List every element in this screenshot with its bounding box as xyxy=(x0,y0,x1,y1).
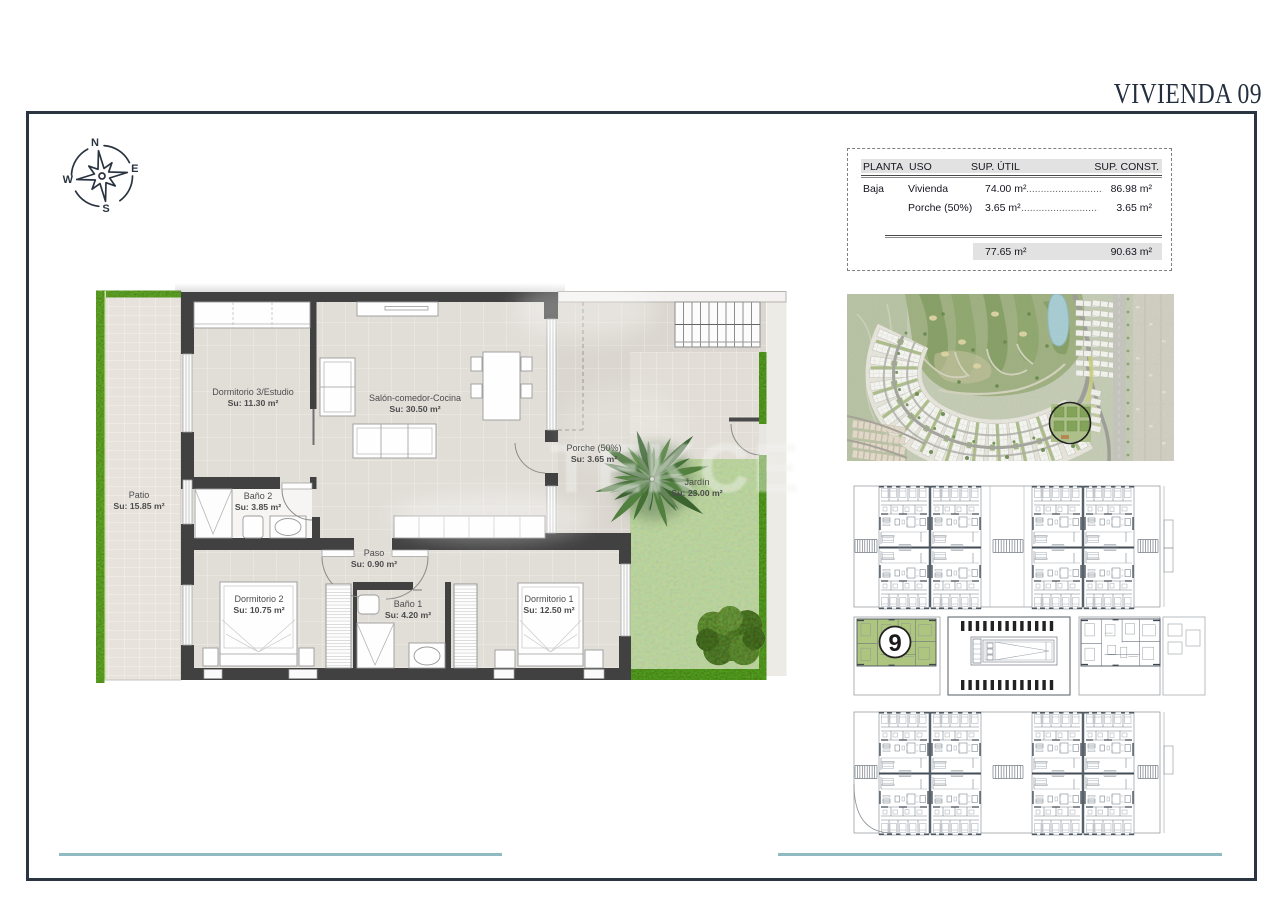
svg-text:W: W xyxy=(63,174,74,186)
svg-text:Su: 30.50 m²: Su: 30.50 m² xyxy=(389,404,440,414)
svg-text:S: S xyxy=(102,203,109,215)
svg-text:Su: 12.50 m²: Su: 12.50 m² xyxy=(523,605,574,615)
svg-text:9: 9 xyxy=(888,630,901,657)
svg-text:Porche (50%): Porche (50%) xyxy=(566,443,621,453)
svg-text:Salón-comedor-Cocina: Salón-comedor-Cocina xyxy=(369,393,461,403)
svg-text:Dormitorio 2: Dormitorio 2 xyxy=(234,594,283,604)
svg-text:Su: 0.90 m²: Su: 0.90 m² xyxy=(351,559,397,569)
svg-text:Patio: Patio xyxy=(129,490,150,500)
svg-text:Su: 15.85 m²: Su: 15.85 m² xyxy=(113,501,164,511)
svg-text:Su: 10.75 m²: Su: 10.75 m² xyxy=(233,605,284,615)
svg-text:Dormitorio 1: Dormitorio 1 xyxy=(524,594,573,604)
svg-text:Baño 1: Baño 1 xyxy=(394,599,423,609)
svg-text:E: E xyxy=(131,163,138,175)
svg-text:Su: 23.00 m²: Su: 23.00 m² xyxy=(671,488,722,498)
svg-text:Su: 11.30 m²: Su: 11.30 m² xyxy=(228,398,279,408)
svg-text:Su: 4.20 m²: Su: 4.20 m² xyxy=(385,610,431,620)
svg-text:Paso: Paso xyxy=(364,548,385,558)
svg-text:Su: 3.85 m²: Su: 3.85 m² xyxy=(235,502,281,512)
svg-text:Jardín: Jardín xyxy=(684,477,709,487)
svg-text:N: N xyxy=(91,138,99,149)
svg-text:Su: 3.65 m²: Su: 3.65 m² xyxy=(571,454,617,464)
svg-text:Baño 2: Baño 2 xyxy=(244,491,273,501)
svg-text:Dormitorio 3/Estudio: Dormitorio 3/Estudio xyxy=(212,387,294,397)
